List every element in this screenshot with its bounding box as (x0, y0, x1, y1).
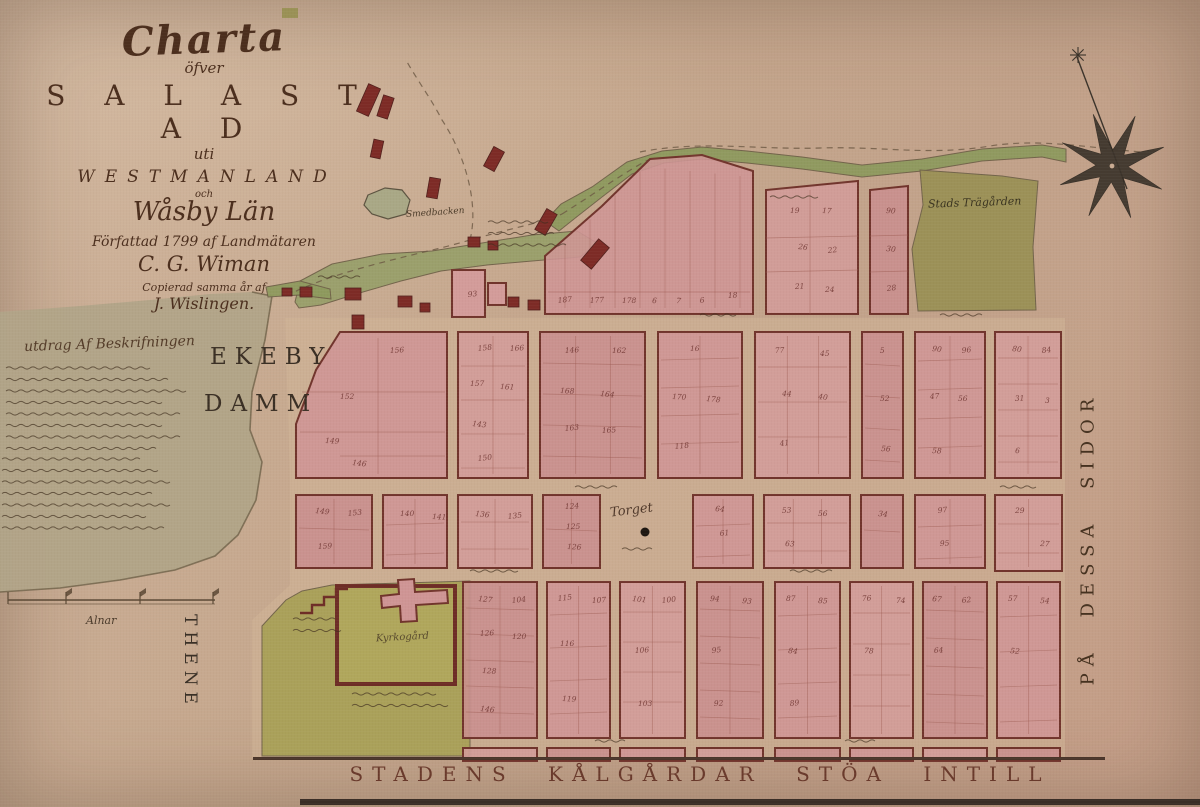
plot-number: 56 (818, 509, 828, 518)
map-title: Charta öfver S A L A S T A D uti WESTMAN… (18, 16, 390, 313)
plot-number: 92 (714, 698, 724, 707)
plot-number: 178 (706, 394, 721, 404)
title-authored-line: Författad 1799 af Landmätaren (18, 234, 390, 250)
building (508, 297, 519, 307)
plot-number: 58 (932, 446, 942, 455)
handwritten-line (940, 314, 982, 316)
plot-number: 57 (1008, 594, 1018, 603)
plot-number: 97 (937, 505, 948, 515)
city-block (755, 332, 850, 478)
plot-number: 152 (340, 392, 355, 401)
scale-unit-label: Alnar (86, 614, 116, 627)
compass-center (1110, 164, 1115, 169)
plot-number: 149 (325, 436, 340, 446)
title-copied-line: Copierad samma år af (18, 281, 390, 294)
building (488, 241, 498, 250)
plot-number: 146 (480, 704, 495, 714)
plot-number: 126 (567, 542, 582, 552)
plot-number: 89 (789, 698, 800, 708)
plot-number: 95 (940, 538, 950, 547)
plot-number: 104 (511, 595, 526, 605)
plot-number: 87 (786, 594, 796, 603)
plot-number: 85 (818, 596, 828, 605)
plot-number: 146 (352, 458, 367, 468)
plot-number: 127 (478, 594, 493, 604)
plot-number: 124 (565, 501, 580, 511)
right-margin-vertical-label: PÅ DESSA SIDOR (1078, 369, 1099, 709)
plot-number: 143 (472, 419, 487, 429)
plot-number: 146 (565, 345, 580, 355)
plot-number: 161 (500, 382, 515, 392)
lake-label-damm: DAMM (204, 391, 318, 417)
plot-number: 107 (592, 595, 607, 605)
plot-number: 116 (560, 639, 575, 648)
plot-number: 178 (622, 296, 637, 305)
lake-label-ekeby: EKEBY (210, 344, 332, 370)
title-author: C. G. Wiman (18, 252, 390, 276)
plot-number: 64 (934, 645, 944, 654)
city-block (766, 181, 858, 314)
plot-number: 3 (1045, 396, 1050, 405)
plot-number: 140 (400, 509, 415, 518)
plot-number: 149 (315, 506, 330, 516)
plot-number: 100 (661, 595, 676, 605)
plot-number: 27 (1039, 539, 1050, 549)
plot-number: 168 (560, 386, 575, 396)
plot-number: 135 (507, 511, 522, 521)
plot-number: 126 (480, 628, 495, 638)
plot-number: 90 (932, 344, 943, 354)
plot-number: 26 (797, 242, 809, 252)
building (468, 237, 480, 247)
title-uti: uti (18, 145, 390, 163)
plot-number: 56 (881, 444, 891, 453)
plot-number: 177 (590, 295, 605, 305)
plot-number: 162 (612, 346, 627, 355)
sala-map-sheet: 1871771786761819172622212490302815615214… (0, 0, 1200, 807)
map-border-line (300, 799, 1200, 805)
building (398, 296, 412, 307)
plot-number: 90 (886, 206, 896, 215)
plot-number: 106 (635, 645, 650, 655)
plot-number: 74 (896, 596, 906, 605)
plot-number: 61 (719, 528, 729, 538)
city-block (764, 495, 850, 568)
plot-number: 47 (929, 391, 940, 401)
map-border-line (253, 757, 1105, 760)
plot-number: 34 (878, 509, 889, 519)
plot-number: 40 (817, 392, 829, 402)
plot-number: 166 (510, 343, 525, 353)
plot-number: 84 (788, 646, 799, 656)
plot-number: 56 (958, 394, 968, 403)
plot-number: 159 (318, 541, 333, 551)
plot-number: 41 (778, 438, 789, 448)
plot-number: 54 (1040, 596, 1050, 605)
title-copyist: J. Wislingen. (18, 294, 390, 313)
plot-number: 29 (1014, 506, 1025, 515)
building (426, 177, 440, 199)
plot-number: 17 (822, 206, 832, 215)
title-sala-stad: S A L A S T A D (28, 79, 390, 145)
plot-number: 5 (880, 346, 885, 355)
plot-number: 18 (728, 290, 738, 299)
plot-number: 93 (467, 289, 478, 299)
plot-number: 28 (885, 283, 897, 293)
plot-number: 84 (1041, 345, 1052, 355)
bottom-caption: STADENS KÅLGÅRDAR STÖA INTILL (270, 762, 1130, 786)
plot-number: 67 (932, 594, 943, 604)
plot-number: 52 (1010, 646, 1021, 656)
title-westmanland: WESTMANLAND (24, 167, 390, 187)
plot-number: 76 (862, 593, 872, 602)
plot-number: 45 (819, 349, 830, 358)
scale-bar-flag (66, 588, 72, 597)
plot-number: 31 (1015, 394, 1025, 403)
city-block (545, 155, 753, 314)
plot-number: 163 (564, 423, 579, 433)
plot-number: 119 (562, 694, 577, 704)
building (352, 315, 364, 329)
building (420, 303, 430, 312)
plot-number: 115 (557, 593, 572, 603)
plot-number: 52 (880, 394, 890, 403)
plot-number: 64 (715, 504, 726, 514)
plot-number: 187 (557, 295, 572, 305)
plot-number: 62 (961, 595, 972, 605)
town-garden (912, 170, 1038, 311)
plot-number: 120 (512, 632, 527, 641)
plot-number: 16 (690, 344, 700, 353)
left-margin-vertical-label: THENE (180, 577, 200, 747)
plot-number: 170 (672, 392, 687, 402)
plot-number: 24 (824, 285, 835, 294)
plot-number: 19 (790, 206, 800, 215)
plot-number: 153 (347, 508, 362, 518)
large-building (488, 283, 506, 305)
plot-number: 164 (600, 389, 615, 399)
plot-number: 118 (674, 441, 689, 451)
scale-bar-flag (213, 588, 219, 597)
plot-number: 78 (864, 646, 874, 655)
market-square-well-dot (641, 528, 650, 537)
plot-number: 165 (602, 425, 617, 435)
plot-number: 103 (638, 699, 653, 708)
plot-number: 158 (477, 343, 492, 353)
plot-number: 22 (826, 245, 838, 255)
plot-number: 157 (470, 379, 485, 388)
plot-number: 95 (711, 645, 722, 655)
plot-number: 21 (794, 282, 805, 292)
plot-number: 94 (710, 594, 720, 603)
plot-number: 150 (477, 453, 492, 463)
plot-number: 80 (1012, 344, 1023, 354)
scale-bar-flag (140, 588, 146, 597)
plot-number: 77 (775, 345, 785, 354)
title-wasby-lan: Wåsby Län (18, 197, 390, 227)
building (484, 146, 505, 171)
plot-number: 96 (961, 345, 972, 355)
plot-number: 63 (785, 539, 795, 548)
plot-number: 136 (475, 509, 490, 519)
plot-number: 128 (482, 666, 497, 676)
plot-number: 53 (782, 505, 792, 514)
plot-number: 141 (432, 512, 447, 522)
plot-number: 6 (652, 296, 657, 305)
plot-number: 93 (742, 596, 753, 606)
plot-number: 44 (781, 389, 792, 399)
plot-number: 101 (632, 594, 647, 604)
building (528, 300, 540, 310)
plot-number: 6 (1015, 446, 1020, 455)
plot-number: 30 (886, 244, 897, 254)
plot-number: 156 (390, 345, 405, 355)
plot-number: 125 (566, 522, 581, 531)
